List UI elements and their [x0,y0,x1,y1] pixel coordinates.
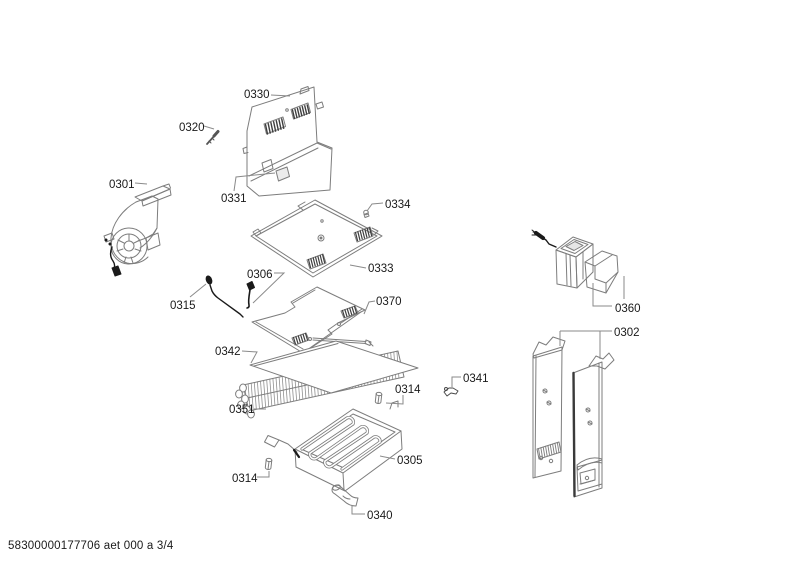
document-number: 58300000177706 aet 000 a 3/4 [8,540,173,552]
wire-0306-drawing [247,282,255,309]
leader-0333 [350,265,366,268]
leader-0334 [367,203,383,211]
clip-0314-lower-drawing [265,458,272,470]
part-label-0315-8: 0315 [170,300,196,312]
fan-assembly-0301-drawing [104,184,171,276]
parts-diagram-page: 0330032003010331033403330306037003150342… [0,0,800,566]
part-label-0330-0: 0330 [244,89,270,101]
leader-0341 [452,377,461,387]
leader-0315 [190,284,206,297]
leader-0331 [234,173,275,191]
part-label-0334-4: 0334 [385,199,411,211]
tray-0305-drawing [265,401,403,491]
part-label-0370-7: 0370 [376,296,402,308]
screw-0320-drawing [207,132,218,145]
sensor-0315-drawing [205,275,243,317]
part-label-0351-12: 0351 [229,404,255,416]
leader-0314-lower [257,471,269,477]
part-label-0320-1: 0320 [179,122,205,134]
part-label-0341-11: 0341 [463,373,489,385]
part-label-0342-9: 0342 [215,346,241,358]
duct-panels-0302-drawing [533,337,614,497]
plate-0370-drawing [252,287,373,353]
part-label-0306-6: 0306 [247,269,273,281]
screw-0334-drawing [364,210,369,217]
part-label-0301-2: 0301 [109,179,135,191]
part-label-0333-5: 0333 [368,263,394,275]
damper-assembly-0360-drawing [532,230,618,293]
part-label-0360-16: 0360 [615,303,641,315]
clip-0314-upper-drawing [375,392,382,404]
exploded-view-drawing: 0330032003010331033403330306037003150342… [0,0,800,566]
leader-0305 [380,456,395,459]
leader-0320 [204,126,214,129]
rear-panel-0330-drawing [243,87,332,197]
part-label-0302-17: 0302 [614,327,640,339]
leader-0302 [560,331,612,359]
vent-slats [266,105,559,458]
foil-sheet-0342-drawing [250,341,418,393]
leader-0370 [364,301,375,314]
part-label-0340-15: 0340 [367,510,393,522]
part-label-0305-13: 0305 [397,455,423,467]
leader-0342 [242,351,257,363]
clamp-0341-drawing [444,388,458,397]
elbow-0340-drawing [332,484,358,506]
part-label-0314-14: 0314 [232,473,258,485]
part-label-0331-3: 0331 [221,193,247,205]
part-label-0314-10: 0314 [395,384,421,396]
leader-0301 [135,183,147,184]
